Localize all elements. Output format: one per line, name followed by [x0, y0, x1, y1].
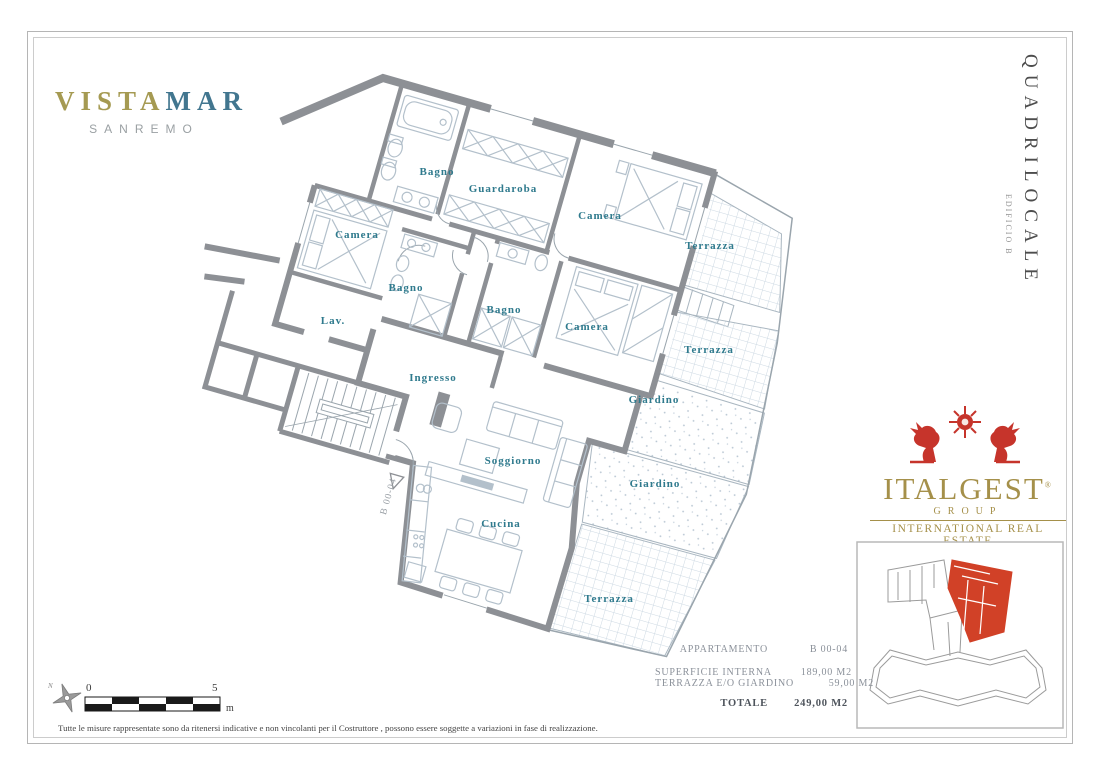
- room-label-giardino-1: Giardino: [629, 394, 680, 406]
- detail-value-total: 249,00 M2: [768, 698, 848, 709]
- detail-row-superficie: SUPERFICIE INTERNA 189,00 M2: [655, 667, 848, 678]
- detail-row-apartment: APPARTAMENTO B 00-04: [655, 644, 848, 655]
- room-label-lav: Lav.: [321, 315, 345, 327]
- scale-five: 5: [212, 682, 218, 694]
- room-label-camera-topright: Camera: [578, 210, 622, 222]
- detail-label-terrazza: TERRAZZA E/O GIARDINO: [655, 678, 794, 689]
- disclaimer-text: Tutte le misure rappresentate sono da ri…: [58, 723, 678, 733]
- room-label-ingresso: Ingresso: [409, 372, 457, 384]
- room-label-giardino-2: Giardino: [630, 478, 681, 490]
- floorplan-drawing: Bagno Guardaroba Camera Camera Bagno Lav…: [0, 0, 1100, 777]
- detail-label-total: TOTALE: [655, 698, 768, 709]
- svg-text:N: N: [47, 682, 53, 690]
- floorplan-page: VISTAMAR SANREMO QUADRILOCALE EDIFICIO B: [0, 0, 1100, 777]
- room-label-terrazza-tr: Terrazza: [685, 240, 735, 252]
- scale-zero: 0: [86, 682, 92, 694]
- apartment-details: APPARTAMENTO B 00-04 SUPERFICIE INTERNA …: [655, 644, 848, 709]
- scale-bar-cells: [85, 697, 220, 711]
- unit-code-label: B 00-04: [379, 477, 399, 516]
- room-label-soggiorno: Soggiorno: [485, 455, 542, 467]
- room-label-cucina: Cucina: [481, 518, 521, 530]
- room-label-camera-left: Camera: [335, 229, 379, 241]
- room-label-bagno-mid: Bagno: [487, 304, 522, 316]
- key-plan: [857, 542, 1063, 728]
- scale-bar: 0 5 m: [85, 682, 234, 714]
- detail-label-apartment: APPARTAMENTO: [655, 644, 768, 655]
- room-label-camera-right: Camera: [565, 321, 609, 333]
- room-label-bagno-top: Bagno: [420, 166, 455, 178]
- detail-value-superficie: 189,00 M2: [772, 667, 852, 678]
- detail-row-terrazza: TERRAZZA E/O GIARDINO 59,00 M2: [655, 678, 848, 689]
- room-label-terrazza-bottom: Terrazza: [584, 593, 634, 605]
- room-label-bagno-left: Bagno: [389, 282, 424, 294]
- room-label-guardaroba: Guardaroba: [469, 183, 537, 195]
- scale-unit: m: [226, 703, 234, 714]
- detail-label-superficie: SUPERFICIE INTERNA: [655, 667, 772, 678]
- detail-value-apartment: B 00-04: [768, 644, 848, 655]
- detail-value-terrazza: 59,00 M2: [794, 678, 874, 689]
- detail-row-total: TOTALE 249,00 M2: [655, 698, 848, 709]
- room-label-terrazza-r: Terrazza: [684, 344, 734, 356]
- north-compass-icon: N: [47, 679, 86, 717]
